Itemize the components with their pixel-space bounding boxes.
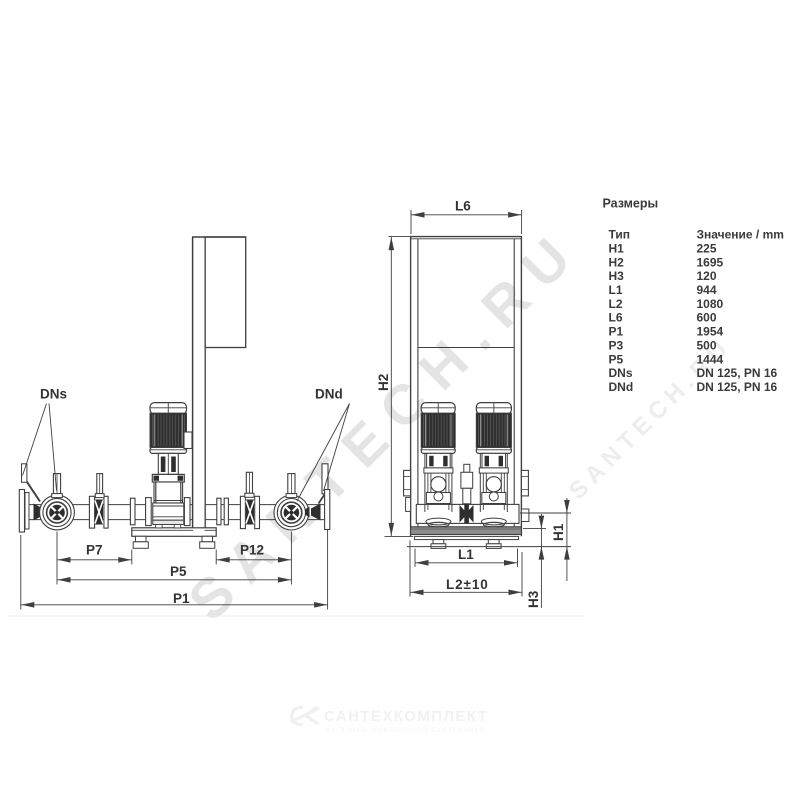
- svg-text:DNd: DNd: [315, 387, 343, 402]
- svg-text:1080: 1080: [697, 297, 724, 311]
- svg-text:120: 120: [697, 269, 717, 283]
- svg-text:H1: H1: [609, 241, 625, 255]
- svg-text:МАГАЗИНЫ ИНЖЕНЕРНОЙ САНТЕХНИКИ: МАГАЗИНЫ ИНЖЕНЕРНОЙ САНТЕХНИКИ: [325, 726, 485, 734]
- svg-text:P5: P5: [170, 564, 187, 579]
- svg-text:225: 225: [697, 241, 717, 255]
- svg-text:DN 125, PN 16: DN 125, PN 16: [697, 366, 778, 380]
- svg-text:P1: P1: [173, 591, 190, 606]
- svg-text:Размеры: Размеры: [603, 197, 659, 211]
- svg-text:P3: P3: [609, 338, 624, 352]
- svg-text:1695: 1695: [697, 255, 724, 269]
- svg-text:L1: L1: [458, 547, 474, 562]
- svg-text:P7: P7: [86, 543, 103, 558]
- svg-text:H3: H3: [609, 269, 625, 283]
- svg-text:DNs: DNs: [609, 366, 633, 380]
- svg-text:L6: L6: [609, 311, 623, 325]
- svg-text:Тип: Тип: [609, 228, 631, 242]
- svg-text:САНТЕХКОМПЛЕКТ: САНТЕХКОМПЛЕКТ: [324, 708, 488, 725]
- svg-text:L2±10: L2±10: [446, 577, 489, 592]
- svg-text:1954: 1954: [697, 325, 724, 339]
- svg-text:P1: P1: [609, 325, 624, 339]
- svg-text:DNs: DNs: [40, 387, 67, 402]
- svg-text:P5: P5: [609, 352, 624, 366]
- svg-text:1444: 1444: [697, 352, 724, 366]
- svg-text:DNd: DNd: [609, 380, 634, 394]
- svg-text:L1: L1: [609, 283, 623, 297]
- svg-text:H2: H2: [376, 374, 391, 391]
- svg-text:DN 125, PN 16: DN 125, PN 16: [697, 380, 778, 394]
- svg-text:600: 600: [697, 311, 717, 325]
- svg-text:H2: H2: [609, 255, 625, 269]
- svg-text:Значение / mm: Значение / mm: [697, 228, 784, 242]
- svg-text:944: 944: [697, 283, 717, 297]
- svg-text:H3: H3: [526, 590, 541, 608]
- svg-text:L2: L2: [609, 297, 623, 311]
- svg-text:L6: L6: [455, 199, 471, 214]
- svg-text:H1: H1: [551, 523, 566, 541]
- svg-text:500: 500: [697, 338, 717, 352]
- svg-text:P12: P12: [240, 543, 264, 558]
